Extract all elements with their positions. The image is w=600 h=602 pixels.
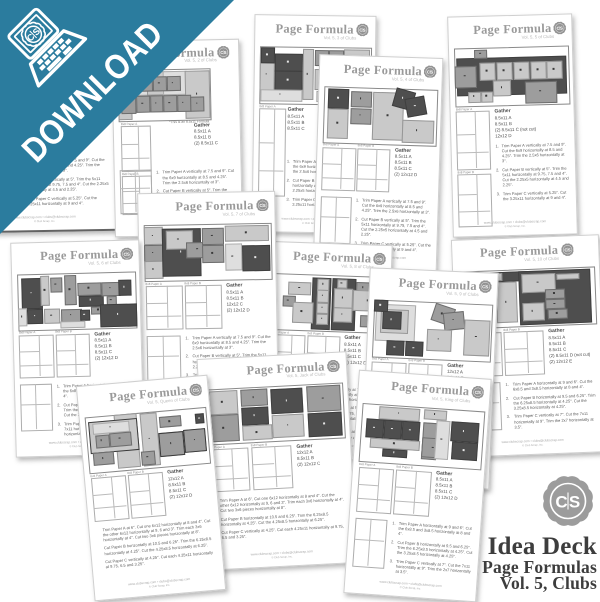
svg-text:C: C [330, 364, 333, 369]
svg-text:S: S [431, 69, 434, 74]
svg-text:S: S [362, 28, 365, 33]
svg-text:S: S [223, 50, 226, 55]
svg-text:S: S [478, 390, 481, 395]
svg-text:C: C [377, 256, 380, 261]
svg-text:C: C [124, 252, 127, 257]
svg-text:S: S [127, 251, 130, 256]
svg-text:S: S [380, 257, 383, 262]
svg-text:C: C [474, 390, 477, 395]
svg-text:C: C [427, 69, 430, 74]
svg-text:C: C [564, 247, 567, 252]
svg-text:C: C [192, 388, 196, 393]
svg-text:C: C [482, 284, 485, 289]
svg-text:C: C [220, 50, 223, 55]
svg-text:S: S [486, 284, 489, 289]
svg-text:S: S [334, 363, 337, 368]
svg-text:C: C [259, 203, 262, 208]
svg-text:S: S [569, 492, 580, 511]
svg-text:S: S [560, 26, 563, 31]
svg-text:S: S [262, 203, 265, 208]
svg-text:S: S [567, 247, 570, 252]
svg-text:C: C [557, 26, 560, 31]
svg-text:C: C [555, 492, 567, 511]
svg-text:C: C [359, 28, 362, 33]
